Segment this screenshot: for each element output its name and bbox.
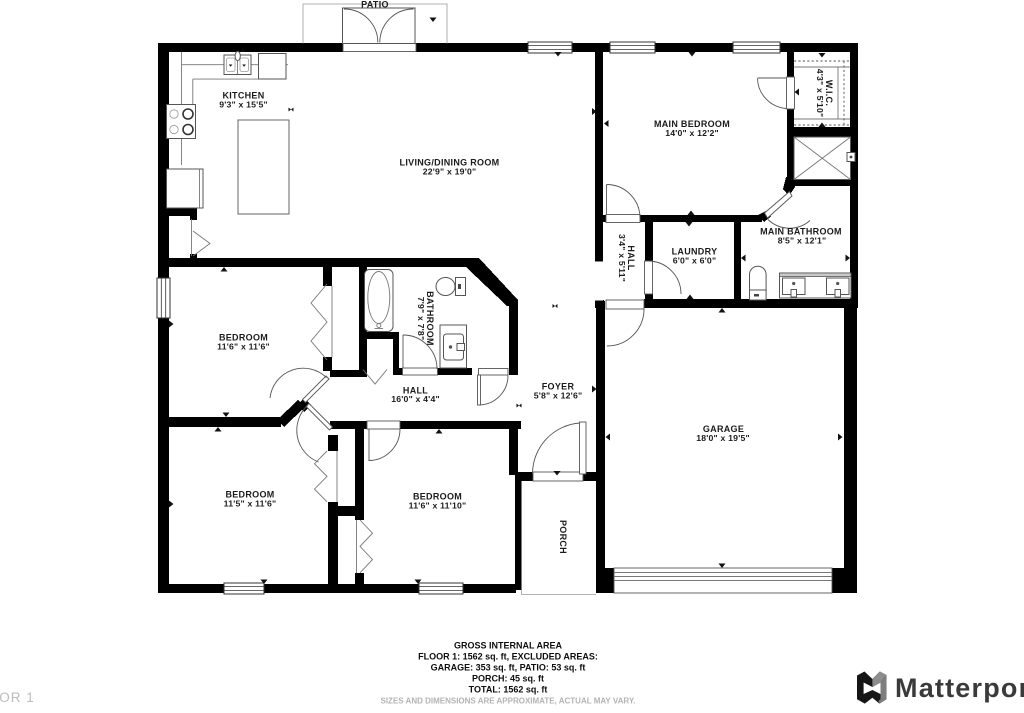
svg-text:22'9" x 19'0": 22'9" x 19'0": [423, 167, 477, 177]
svg-text:11'6" x 11'6": 11'6" x 11'6": [217, 342, 270, 352]
svg-text:18'0" x 19'5": 18'0" x 19'5": [696, 433, 750, 443]
svg-text:TOTAL: 1562 sq. ft: TOTAL: 1562 sq. ft: [469, 685, 548, 695]
svg-text:5'8" x 12'6": 5'8" x 12'6": [534, 391, 583, 401]
svg-text:PATIO: PATIO: [361, 0, 389, 10]
svg-text:8'5" x 12'1": 8'5" x 12'1": [778, 236, 827, 246]
svg-text:SIZES AND DIMENSIONS ARE APPRO: SIZES AND DIMENSIONS ARE APPROXIMATE, AC…: [381, 697, 636, 706]
svg-text:9'3" x 15'5": 9'3" x 15'5": [219, 100, 268, 110]
svg-text:GROSS INTERNAL AREA: GROSS INTERNAL AREA: [454, 641, 563, 651]
svg-text:11'5" x 11'6": 11'5" x 11'6": [224, 499, 277, 509]
svg-text:FLOOR 1: FLOOR 1: [0, 690, 35, 705]
svg-text:PORCH: 45 sq. ft: PORCH: 45 sq. ft: [472, 674, 544, 684]
svg-text:6'0" x 6'0": 6'0" x 6'0": [673, 256, 717, 266]
svg-text:GARAGE: 353 sq. ft, PATIO: 53: GARAGE: 353 sq. ft, PATIO: 53 sq. ft: [431, 663, 586, 673]
svg-text:4'3" x 5'10": 4'3" x 5'10": [815, 69, 825, 118]
svg-text:7'9" x 7'8": 7'9" x 7'8": [416, 297, 426, 341]
svg-text:FLOOR 1: 1562 sq. ft, EXCLUDED: FLOOR 1: 1562 sq. ft, EXCLUDED AREAS:: [418, 652, 598, 662]
svg-text:11'6" x 11'10": 11'6" x 11'10": [409, 501, 467, 511]
svg-text:16'0" x 4'4": 16'0" x 4'4": [391, 394, 440, 404]
svg-text:3'4" x 5'11": 3'4" x 5'11": [617, 234, 627, 282]
svg-text:14'0" x 12'2": 14'0" x 12'2": [665, 128, 719, 138]
svg-text:PORCH: PORCH: [558, 520, 568, 554]
svg-text:Matterport: Matterport: [895, 673, 1024, 703]
